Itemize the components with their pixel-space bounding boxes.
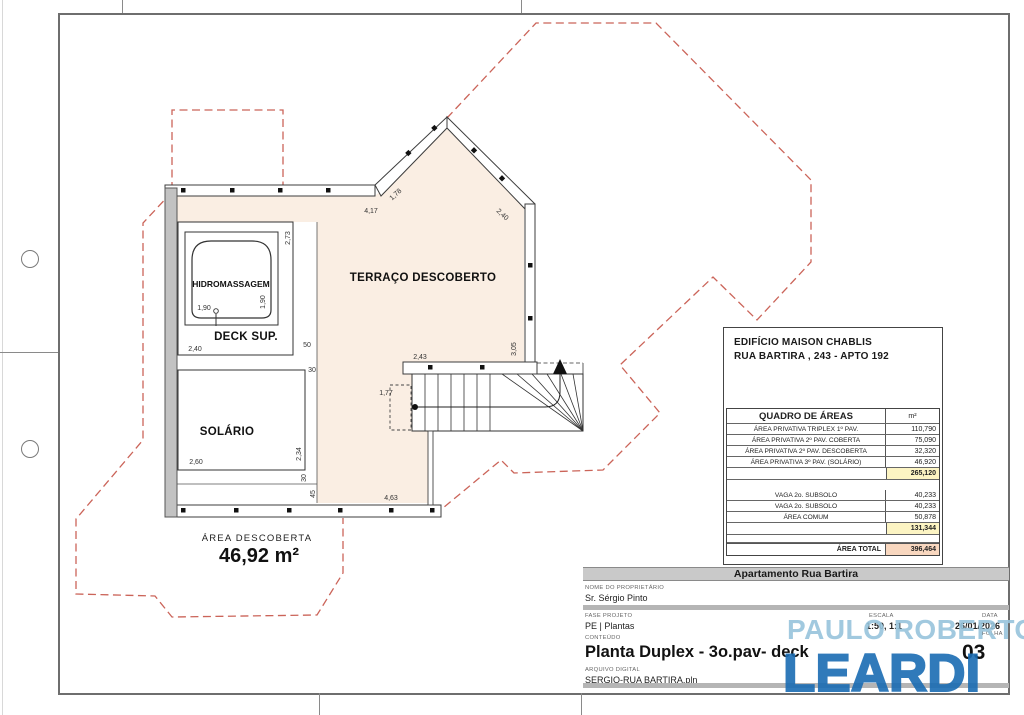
areas-table-title: QUADRO DE ÁREAS bbox=[727, 409, 886, 423]
table-row: ÁREA PRIVATIVA 2º PAV. COBERTA75,090 bbox=[727, 435, 939, 446]
table-row: VAGA 2o. SUBSOLO40,233 bbox=[727, 490, 939, 501]
areas-table-unit: m² bbox=[886, 409, 939, 423]
owner-value: Sr. Sérgio Pinto bbox=[585, 593, 648, 603]
dim-right-wall: 3,05 bbox=[511, 342, 518, 356]
wall-left-grey bbox=[165, 188, 177, 517]
dim-sol-w: 2,60 bbox=[189, 459, 203, 466]
stair-walkline-start-dot bbox=[412, 404, 418, 410]
table-row: VAGA 2o. SUBSOLO40,233 bbox=[727, 501, 939, 512]
dim-tub-col: 2,73 bbox=[285, 231, 292, 245]
dim-sol-h: 2,34 bbox=[296, 447, 303, 461]
terrace-label: TERRAÇO DESCOBERTO bbox=[350, 272, 496, 284]
dim-tub-w: 1,90 bbox=[197, 305, 211, 312]
content-caption: CONTEÚDO bbox=[585, 635, 621, 641]
table-row: ÁREA PRIVATIVA 2º PAV. DESCOBERTA32,320 bbox=[727, 446, 939, 457]
areas-table-box: EDIFÍCIO MAISON CHABLIS RUA BARTIRA , 24… bbox=[723, 327, 943, 565]
areas-table-header: QUADRO DE ÁREAS m² bbox=[727, 409, 939, 424]
table-row: ÁREA PRIVATIVA TRIPLEX 1º PAV.110,790 bbox=[727, 424, 939, 435]
deck-sup-label: DECK SUP. bbox=[214, 331, 278, 343]
building-name: EDIFÍCIO MAISON CHABLIS bbox=[734, 337, 872, 348]
table-row: ÁREA COMUM50,878 bbox=[727, 512, 939, 523]
phase-caption: FASE PROJETO bbox=[585, 613, 632, 619]
logo-text-paulo-roberto: PAULO ROBERTO bbox=[787, 614, 1024, 646]
wall-below-stair bbox=[428, 431, 433, 505]
table-row-subtotal: 265,120 bbox=[727, 468, 939, 480]
hidro-label: HIDROMASSAGEM bbox=[192, 279, 269, 289]
content-value: Planta Duplex - 3o.pav- deck bbox=[585, 643, 809, 662]
dim-seg50: 50 bbox=[303, 342, 311, 349]
table-row-subtotal: 131,344 bbox=[727, 523, 939, 535]
table-row-total: ÁREA TOTAL396,464 bbox=[727, 543, 939, 555]
phase-value: PE | Plantas bbox=[585, 621, 634, 631]
dim-bottom: 4,63 bbox=[384, 495, 398, 502]
building-address: RUA BARTIRA , 243 - APTO 192 bbox=[734, 351, 889, 362]
dim-stair-left: 1,77 bbox=[379, 390, 393, 397]
project-title: Apartamento Rua Bartira bbox=[583, 567, 1009, 581]
dim-stair-top: 2,43 bbox=[413, 354, 427, 361]
table-row-blank bbox=[727, 535, 939, 543]
table-row: ÁREA PRIVATIVA 3º PAV. (SOLÁRIO)46,920 bbox=[727, 457, 939, 468]
dim-seg45: 45 bbox=[310, 490, 317, 498]
solario-label: SOLÁRIO bbox=[200, 425, 255, 438]
logo-text-leardi: LEARDI bbox=[783, 643, 980, 704]
leardi-logo: PAULO ROBERTO LEARDI bbox=[778, 608, 1018, 700]
owner-caption: NOME DO PROPRIETÁRIO bbox=[585, 585, 664, 591]
solario-room bbox=[178, 370, 305, 470]
dim-seg30a: 30 bbox=[308, 367, 316, 374]
areas-table: QUADRO DE ÁREAS m² ÁREA PRIVATIVA TRIPLE… bbox=[726, 408, 940, 556]
dim-seg30b: 30 bbox=[301, 474, 308, 482]
file-caption: ARQUIVO DIGITAL bbox=[585, 667, 640, 673]
dim-deck-w: 2,40 bbox=[188, 346, 202, 353]
dim-top: 4,17 bbox=[364, 208, 378, 215]
area-descoberta-caption: ÁREA DESCOBERTA bbox=[202, 533, 313, 544]
table-row-blank bbox=[727, 480, 939, 490]
stair-direction-arrow bbox=[553, 359, 567, 374]
area-descoberta-value: 46,92 m² bbox=[219, 545, 299, 567]
dim-tub-h: 1,90 bbox=[260, 295, 267, 309]
